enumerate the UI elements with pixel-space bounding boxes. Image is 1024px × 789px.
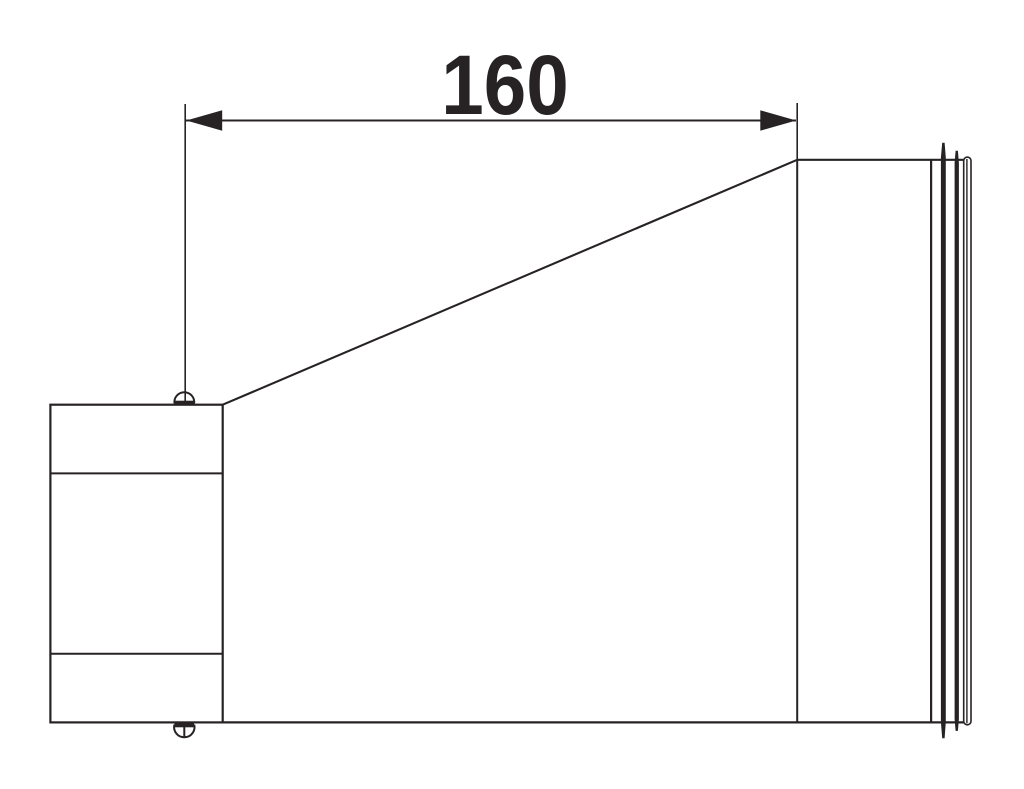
svg-text:160: 160 [441, 38, 569, 132]
